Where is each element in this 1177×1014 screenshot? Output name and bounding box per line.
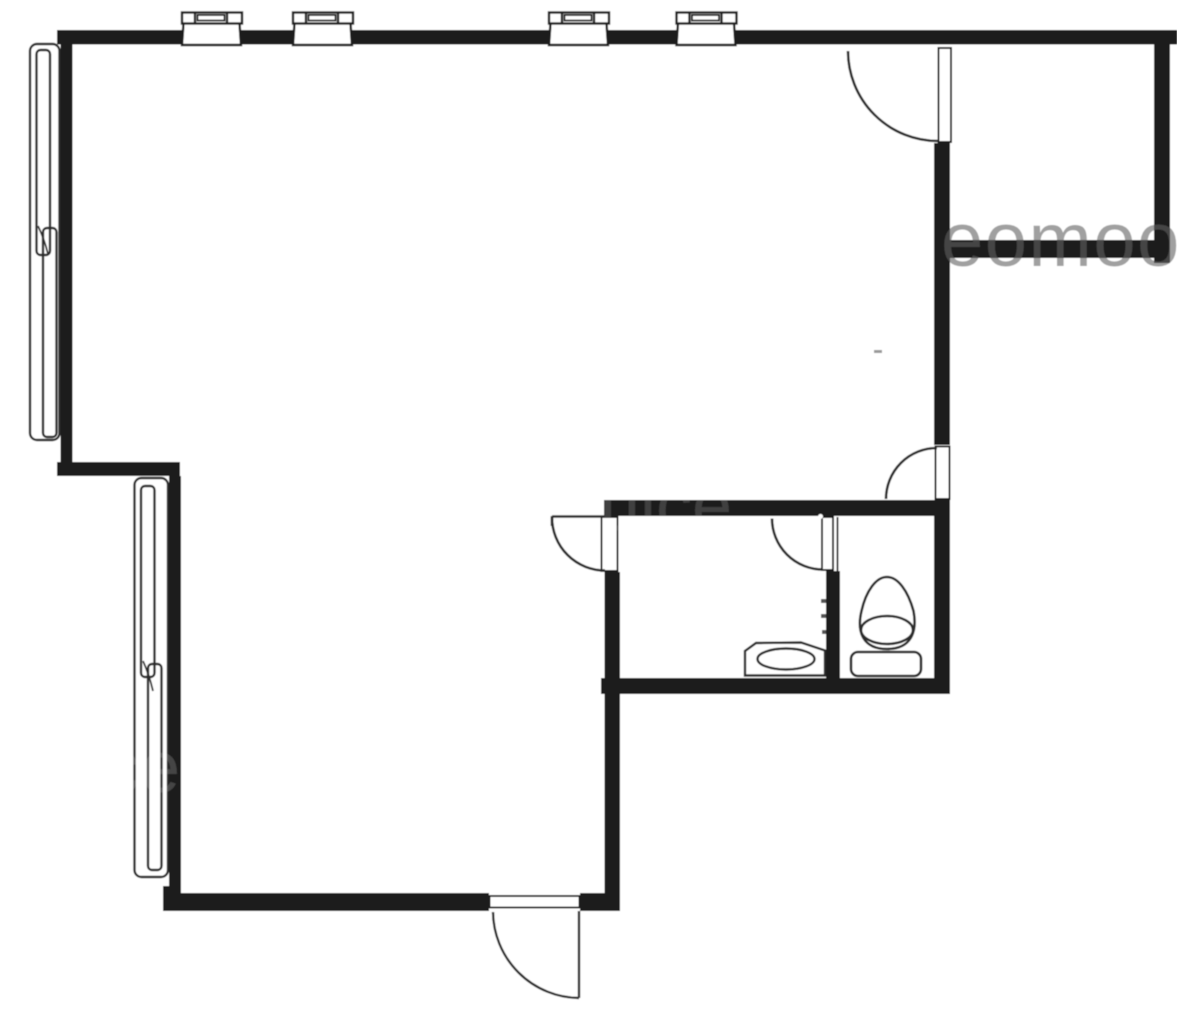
svg-text:ice: ice <box>88 728 180 808</box>
svg-text:uice: uice <box>600 466 732 546</box>
svg-text:eomoo: eomoo <box>941 198 1177 283</box>
